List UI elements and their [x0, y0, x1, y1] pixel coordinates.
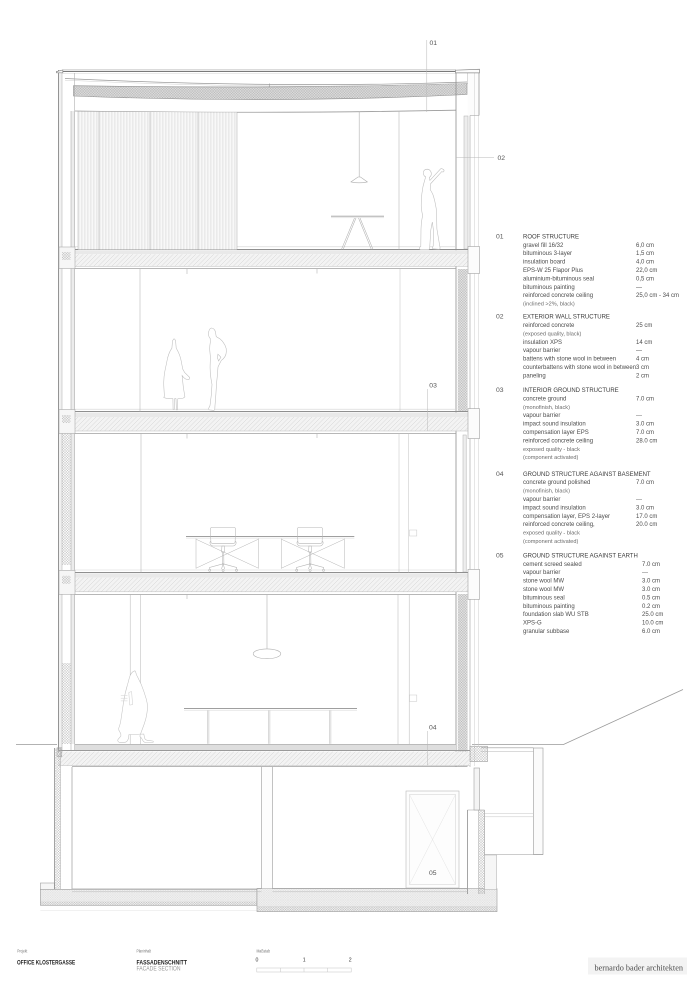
svg-text:exposed quality - black: exposed quality - black	[523, 531, 580, 537]
svg-text:Projekt: Projekt	[17, 948, 28, 953]
svg-text:reinforced concrete ceiling,: reinforced concrete ceiling,	[523, 522, 595, 528]
svg-text:---: ---	[642, 570, 648, 576]
svg-text:EXTERIOR WALL STRUCTURE: EXTERIOR WALL STRUCTURE	[523, 315, 610, 321]
svg-text:25 cm: 25 cm	[636, 323, 652, 329]
svg-text:granular subbase: granular subbase	[523, 629, 570, 635]
svg-text:(exposed quality, black): (exposed quality, black)	[523, 331, 581, 337]
svg-text:—: —	[636, 285, 642, 291]
svg-text:vapour barrier: vapour barrier	[523, 348, 560, 354]
svg-text:EPS-W 25 Flapor Plus: EPS-W 25 Flapor Plus	[523, 268, 583, 274]
svg-text:counterbattens with stone wool: counterbattens with stone wool in betwee…	[523, 365, 636, 371]
svg-text:7.0 cm: 7.0 cm	[636, 430, 654, 436]
svg-text:7.0 cm: 7.0 cm	[636, 480, 654, 486]
svg-text:bituminous seal: bituminous seal	[523, 595, 565, 601]
svg-text:---: ---	[636, 497, 642, 503]
svg-text:cement screed sealed: cement screed sealed	[523, 562, 582, 568]
svg-text:(component activated): (component activated)	[523, 455, 578, 461]
svg-text:3.0 cm: 3.0 cm	[636, 422, 654, 428]
svg-text:insulation XPS: insulation XPS	[523, 340, 562, 346]
svg-text:28.0 cm: 28.0 cm	[636, 438, 657, 444]
svg-text:concrete ground polished: concrete ground polished	[523, 480, 590, 486]
svg-text:gravel fill 16/32: gravel fill 16/32	[523, 243, 564, 249]
svg-text:insulation board: insulation board	[523, 260, 565, 266]
svg-text:01: 01	[430, 40, 438, 47]
svg-text:(inclined >2%, black): (inclined >2%, black)	[523, 302, 575, 308]
svg-text:22,0 cm: 22,0 cm	[636, 268, 657, 274]
svg-text:vapour barrier: vapour barrier	[523, 497, 560, 503]
svg-text:7.0 cm: 7.0 cm	[636, 396, 654, 402]
svg-text:02: 02	[498, 155, 506, 162]
svg-text:paneling: paneling	[523, 373, 546, 379]
svg-text:3.0 cm: 3.0 cm	[636, 505, 654, 511]
svg-text:bernardo bader architekten: bernardo bader architekten	[595, 963, 684, 973]
svg-text:compensation layer, EPS 2-laye: compensation layer, EPS 2-layer	[523, 514, 610, 520]
svg-text:Planinhalt: Planinhalt	[137, 948, 152, 953]
svg-text:0.5 cm: 0.5 cm	[642, 595, 660, 601]
svg-text:03: 03	[429, 383, 437, 390]
svg-text:03: 03	[496, 387, 504, 394]
svg-text:bituminous painting: bituminous painting	[523, 285, 575, 291]
svg-text:compensation layer EPS: compensation layer EPS	[523, 430, 589, 436]
svg-text:1,5 cm: 1,5 cm	[636, 251, 654, 257]
svg-text:05: 05	[429, 870, 437, 877]
svg-text:bituminous 3-layer: bituminous 3-layer	[523, 251, 572, 257]
svg-text:INTERIOR GROUND STRUCTURE: INTERIOR GROUND STRUCTURE	[523, 388, 619, 394]
svg-text:4,0 cm: 4,0 cm	[636, 260, 654, 266]
svg-text:ROOF STRUCTURE: ROOF STRUCTURE	[523, 234, 579, 240]
svg-text:impact sound insulation: impact sound insulation	[523, 422, 586, 428]
svg-text:foundation slab WU STB: foundation slab WU STB	[523, 612, 589, 618]
svg-text:25,0 cm - 34 cm: 25,0 cm - 34 cm	[636, 293, 679, 299]
svg-text:04: 04	[496, 471, 504, 478]
svg-text:GROUND STRUCTURE AGAINST BASEM: GROUND STRUCTURE AGAINST BASEMENT	[523, 472, 651, 478]
svg-text:reinforced concrete ceiling: reinforced concrete ceiling	[523, 293, 593, 299]
svg-text:04: 04	[429, 725, 437, 732]
svg-text:Maßstab: Maßstab	[257, 948, 271, 953]
svg-text:exposed quality - black: exposed quality - black	[523, 447, 580, 453]
svg-text:(monofinish, black): (monofinish, black)	[523, 489, 570, 495]
svg-text:OFFICE KLOSTERGASSE: OFFICE KLOSTERGASSE	[17, 960, 76, 967]
svg-text:0.2 cm: 0.2 cm	[642, 604, 660, 610]
svg-text:6,0 cm: 6,0 cm	[636, 243, 654, 249]
svg-text:0: 0	[256, 958, 259, 964]
svg-text:01: 01	[496, 233, 504, 240]
svg-text:FACADE SECTION: FACADE SECTION	[137, 967, 181, 973]
svg-text:(component activated): (component activated)	[523, 539, 578, 545]
svg-text:FASSADENSCHNITT: FASSADENSCHNITT	[137, 960, 188, 967]
svg-text:concrete ground: concrete ground	[523, 396, 566, 402]
svg-text:3.0 cm: 3.0 cm	[642, 579, 660, 585]
svg-text:GROUND STRUCTURE AGAINST EARTH: GROUND STRUCTURE AGAINST EARTH	[523, 553, 638, 559]
svg-text:3.0 cm: 3.0 cm	[642, 587, 660, 593]
svg-text:stone wool MW: stone wool MW	[523, 587, 564, 593]
svg-text:battens with stone wool in bet: battens with stone wool in between	[523, 357, 616, 363]
svg-text:02: 02	[496, 314, 504, 321]
svg-text:7.0 cm: 7.0 cm	[642, 562, 660, 568]
svg-text:3 cm: 3 cm	[636, 365, 649, 371]
svg-text:6.0 cm: 6.0 cm	[642, 629, 660, 635]
svg-text:0,5 cm: 0,5 cm	[636, 276, 654, 282]
svg-text:05: 05	[496, 552, 504, 559]
svg-text:17.0 cm: 17.0 cm	[636, 514, 657, 520]
svg-text:4 cm: 4 cm	[636, 357, 649, 363]
svg-text:14 cm: 14 cm	[636, 340, 652, 346]
svg-text:reinforced concrete ceiling: reinforced concrete ceiling	[523, 438, 593, 444]
svg-text:XPS-G: XPS-G	[523, 621, 542, 627]
svg-text:—: —	[636, 348, 642, 354]
svg-text:2 cm: 2 cm	[636, 373, 649, 379]
svg-text:1: 1	[303, 958, 306, 964]
svg-text:impact sound insulation: impact sound insulation	[523, 505, 586, 511]
svg-text:reinforced concrete: reinforced concrete	[523, 323, 575, 329]
svg-text:2: 2	[349, 958, 352, 964]
svg-text:vapour barrier: vapour barrier	[523, 413, 560, 419]
svg-text:25.0 cm: 25.0 cm	[642, 612, 663, 618]
svg-text:aluminium-bituminous seal: aluminium-bituminous seal	[523, 276, 594, 282]
svg-text:10.0 cm: 10.0 cm	[642, 621, 663, 627]
svg-text:bituminous painting: bituminous painting	[523, 604, 575, 610]
svg-text:(monofinish, black): (monofinish, black)	[523, 405, 570, 411]
svg-text:vapour barrier: vapour barrier	[523, 570, 560, 576]
svg-text:---: ---	[636, 413, 642, 419]
svg-text:20.0 cm: 20.0 cm	[636, 522, 657, 528]
svg-text:stone wool MW: stone wool MW	[523, 579, 564, 585]
